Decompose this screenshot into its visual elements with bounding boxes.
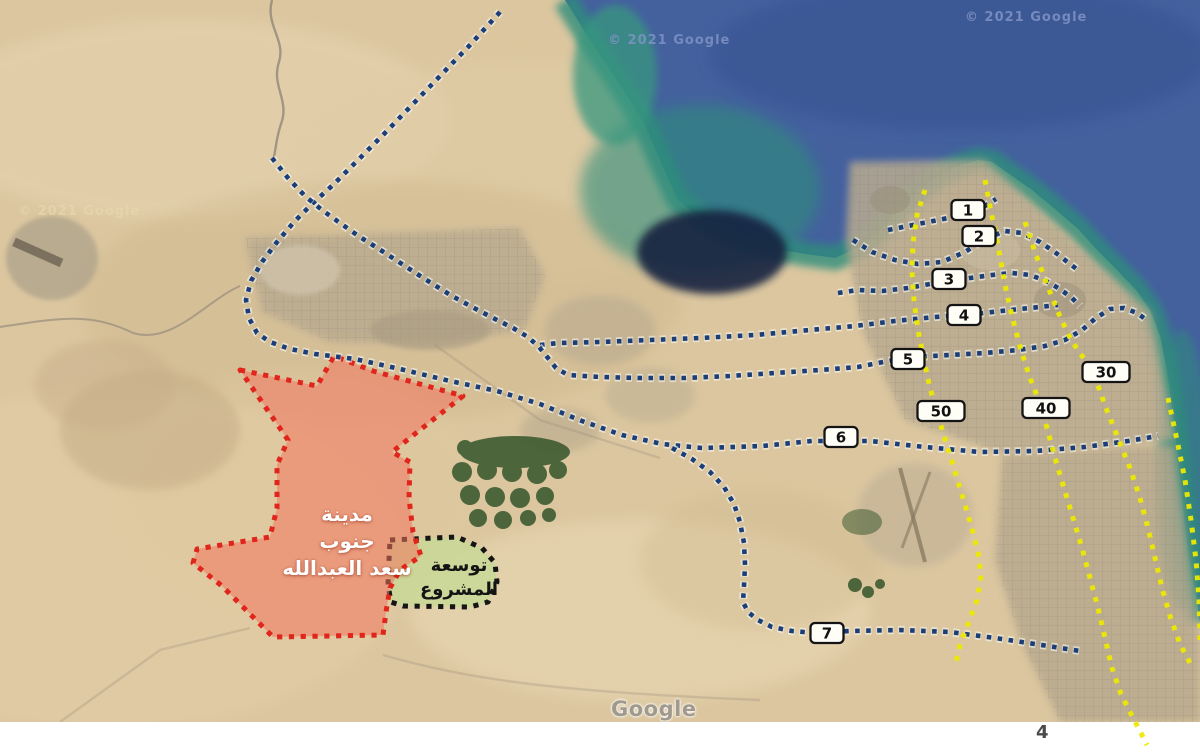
route-label-1: 1	[963, 202, 973, 220]
west-industrial-site	[6, 216, 98, 300]
satellite-base	[0, 0, 1200, 730]
area-label-line: جنوب	[237, 528, 457, 555]
google-logo: Google	[611, 697, 697, 721]
bay-lagoon	[637, 210, 787, 294]
satellite-map-canvas: 1234567304050	[0, 0, 1200, 756]
route-label-2: 2	[974, 228, 984, 246]
copyright-watermark: © 2021 Google	[608, 33, 730, 48]
area-label-line: المشروع	[385, 578, 533, 602]
map-screenshot: 1234567304050 © 2021 Google © 2021 Googl…	[0, 0, 1200, 756]
route-label-7: 7	[822, 625, 832, 643]
project-expansion-label: توسعة المشروع	[385, 554, 533, 602]
route-label-30: 30	[1096, 364, 1117, 382]
area-label-line: مدينة	[237, 501, 457, 528]
area-label-line: توسعة	[385, 554, 533, 578]
bay-west-arm	[573, 5, 657, 145]
route-label-6: 6	[836, 429, 846, 447]
route-label-50: 50	[931, 403, 952, 421]
copyright-watermark: © 2021 Google	[965, 10, 1087, 25]
copyright-watermark: © 2021 Google	[18, 204, 140, 219]
page-number: 4	[1036, 722, 1049, 743]
route-label-3: 3	[944, 271, 954, 289]
route-label-5: 5	[903, 351, 913, 369]
route-label-4: 4	[959, 307, 969, 325]
route-label-40: 40	[1036, 400, 1057, 418]
